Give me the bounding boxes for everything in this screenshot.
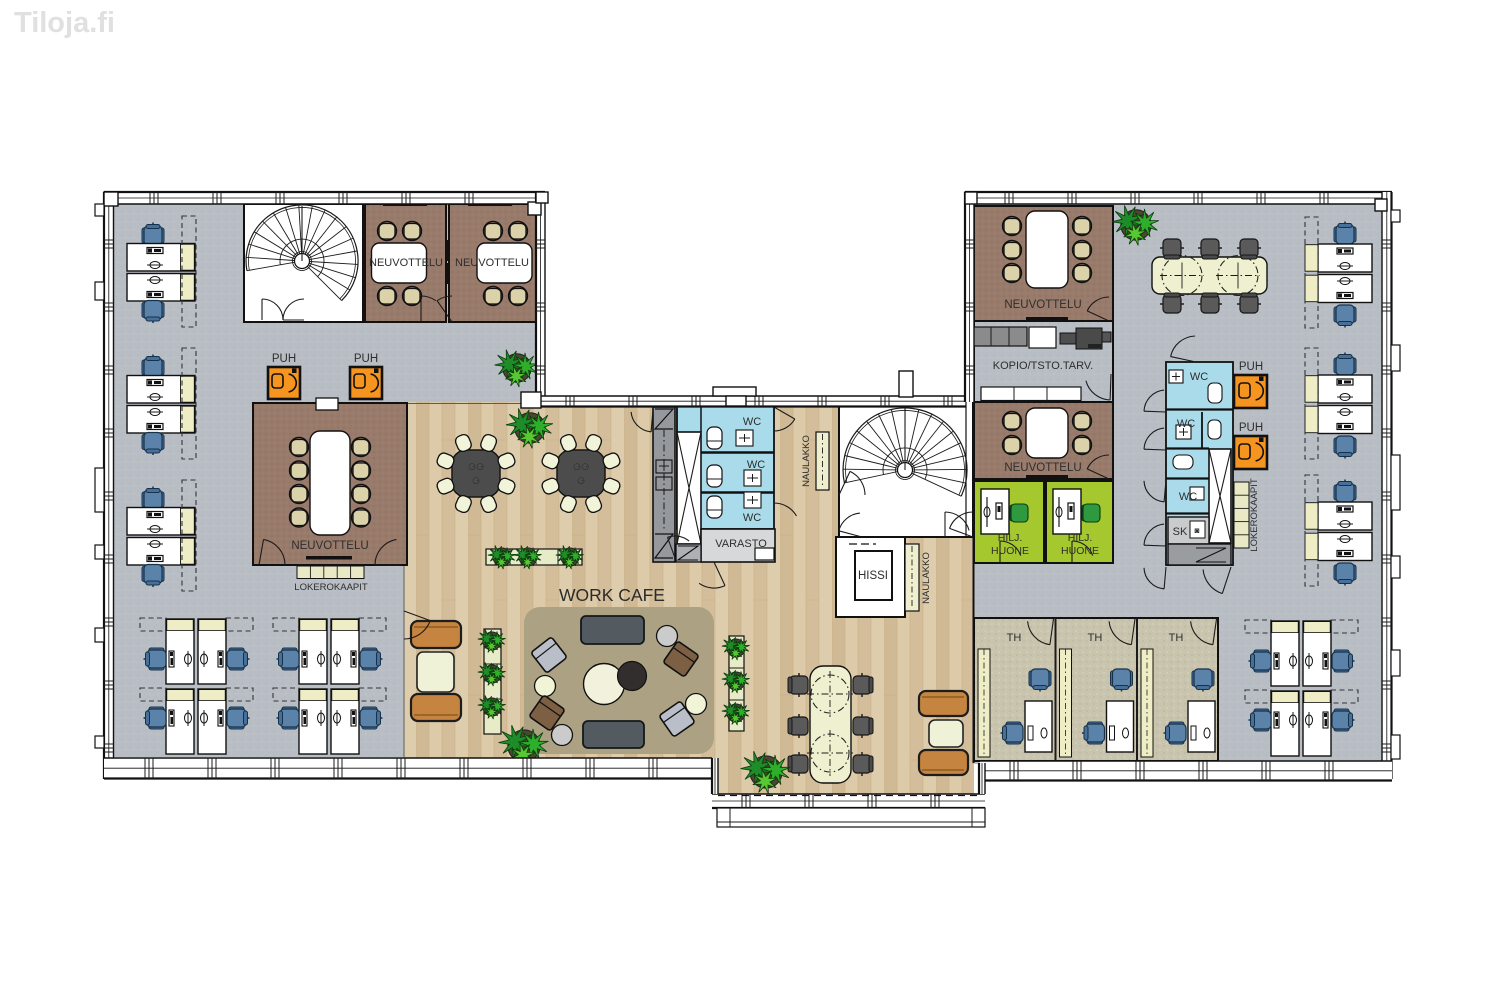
svg-text:WC: WC bbox=[1177, 418, 1195, 430]
svg-text:TH: TH bbox=[1169, 632, 1184, 644]
svg-text:LOKEROKAAPIT: LOKEROKAAPIT bbox=[294, 582, 368, 593]
svg-text:SK: SK bbox=[1173, 526, 1188, 538]
svg-text:WC: WC bbox=[743, 512, 761, 524]
svg-text:PUH: PUH bbox=[354, 353, 378, 365]
svg-text:NAULAKKO: NAULAKKO bbox=[921, 552, 932, 604]
svg-text:PUH: PUH bbox=[1239, 361, 1263, 373]
svg-text:PUH: PUH bbox=[272, 353, 296, 365]
svg-text:NAULAKKO: NAULAKKO bbox=[801, 435, 812, 487]
svg-text:NEUVOTTELU: NEUVOTTELU bbox=[1004, 462, 1081, 474]
svg-text:TH: TH bbox=[1088, 632, 1103, 644]
svg-text:⚆⚆: ⚆⚆ bbox=[573, 462, 589, 472]
svg-text:HILJ.: HILJ. bbox=[998, 532, 1023, 544]
svg-text:WC: WC bbox=[1190, 371, 1208, 383]
svg-text:HILJ.: HILJ. bbox=[1068, 532, 1093, 544]
svg-text:◙: ◙ bbox=[1195, 526, 1200, 535]
svg-text:⚆: ⚆ bbox=[472, 476, 480, 486]
svg-text:NEUVOTTELU: NEUVOTTELU bbox=[455, 257, 529, 269]
svg-text:KOPIO/TSTO.TARV.: KOPIO/TSTO.TARV. bbox=[993, 360, 1093, 372]
svg-text:TH: TH bbox=[1007, 632, 1022, 644]
svg-text:PUH: PUH bbox=[1239, 422, 1263, 434]
svg-text:NEUVOTTELU: NEUVOTTELU bbox=[369, 257, 443, 269]
svg-text:⚆⚆: ⚆⚆ bbox=[468, 462, 484, 472]
svg-text:HUONE: HUONE bbox=[1061, 545, 1099, 557]
svg-text:NEUVOTTELU: NEUVOTTELU bbox=[291, 540, 368, 552]
svg-text:HISSI: HISSI bbox=[858, 570, 888, 582]
svg-text:LOKEROKAAPIT: LOKEROKAAPIT bbox=[1249, 478, 1260, 552]
svg-text:VARASTO: VARASTO bbox=[715, 538, 767, 550]
svg-text:Tiloja.fi: Tiloja.fi bbox=[14, 7, 115, 39]
svg-text:WC: WC bbox=[747, 459, 765, 471]
svg-text:NEUVOTTELU: NEUVOTTELU bbox=[1004, 299, 1081, 311]
svg-text:WC: WC bbox=[743, 416, 761, 428]
svg-text:WORK CAFE: WORK CAFE bbox=[559, 585, 665, 605]
svg-text:WC: WC bbox=[1179, 491, 1197, 503]
svg-text:HUONE: HUONE bbox=[991, 545, 1029, 557]
svg-text:⚆: ⚆ bbox=[577, 476, 585, 486]
